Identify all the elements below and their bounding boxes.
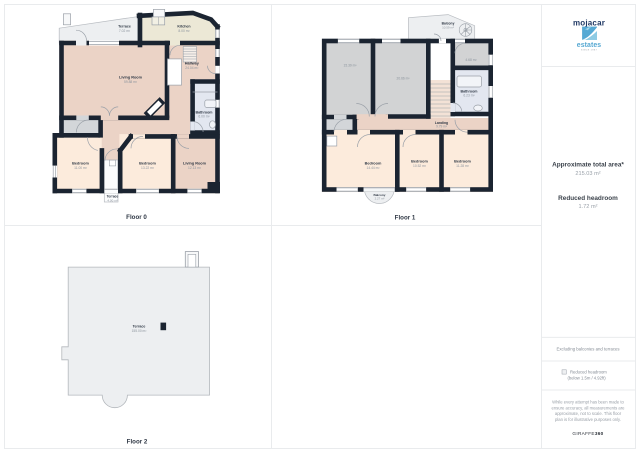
svg-text:Reduced headroom: Reduced headroom [570,369,607,374]
svg-text:13.22 m²: 13.22 m² [141,166,155,170]
svg-text:12.13 m²: 12.13 m² [188,166,202,170]
svg-text:Approximate total area*: Approximate total area* [552,162,624,169]
svg-text:6.00 m²: 6.00 m² [198,115,210,119]
svg-text:7.02 m²: 7.02 m² [119,29,131,33]
svg-text:plan is for illustrative purpo: plan is for illustrative purposes only. [555,417,621,422]
svg-text:11.28 m²: 11.28 m² [456,164,470,168]
svg-text:Floor 0: Floor 0 [126,214,147,221]
svg-text:(below 1.5m / 4.92ft): (below 1.5m / 4.92ft) [568,375,607,380]
svg-text:Reduced headroom: Reduced headroom [558,195,618,202]
svg-text:estates: estates [577,42,602,49]
svg-text:Living Room: Living Room [183,162,207,166]
svg-text:Bedroom: Bedroom [411,160,428,164]
svg-text:Living Room: Living Room [119,76,143,80]
svg-text:15.39 m²: 15.39 m² [343,64,357,68]
svg-text:8.00 m²: 8.00 m² [178,29,190,33]
svg-text:Floor 1: Floor 1 [395,215,416,222]
svg-text:9.79 m²: 9.79 m² [436,125,447,129]
svg-text:SINCE 1987: SINCE 1987 [581,50,598,52]
svg-text:Bedroom: Bedroom [139,162,156,166]
svg-text:10.59 m²: 10.59 m² [442,25,454,29]
svg-text:59.88 m²: 59.88 m² [124,80,138,84]
svg-text:1.72 m²: 1.72 m² [579,204,598,210]
svg-text:Hallway: Hallway [185,62,200,66]
svg-text:6.23 m²: 6.23 m² [463,93,475,97]
svg-text:10.52 m²: 10.52 m² [413,164,427,168]
svg-text:20.66 m²: 20.66 m² [396,77,410,81]
svg-text:Bedroom: Bedroom [365,162,382,166]
svg-text:155.00 m²: 155.00 m² [132,329,148,333]
svg-text:Excluding balconies and terrac: Excluding balconies and terraces [556,347,619,352]
svg-text:4.00 m²: 4.00 m² [107,198,117,202]
svg-text:2.27 m²: 2.27 m² [375,197,385,201]
svg-text:GIRAFFE360: GIRAFFE360 [572,431,603,436]
svg-text:Bedroom: Bedroom [72,162,89,166]
svg-text:While every attempt has been m: While every attempt has been made to [552,400,624,405]
svg-text:4.68 m²: 4.68 m² [465,58,477,62]
svg-text:Floor 2: Floor 2 [127,439,148,446]
svg-text:approximate, not to scale. Thi: approximate, not to scale. This floor [555,411,622,416]
svg-text:mojacar: mojacar [573,19,605,28]
svg-text:ensure accuracy, all measureme: ensure accuracy, all measurements are [551,405,625,410]
svg-text:24.04 m²: 24.04 m² [185,66,199,70]
svg-text:215.03 m²: 215.03 m² [575,171,600,177]
svg-text:14.44 m²: 14.44 m² [366,166,380,170]
svg-text:11.00 m²: 11.00 m² [74,166,88,170]
svg-text:Bedroom: Bedroom [454,160,471,164]
